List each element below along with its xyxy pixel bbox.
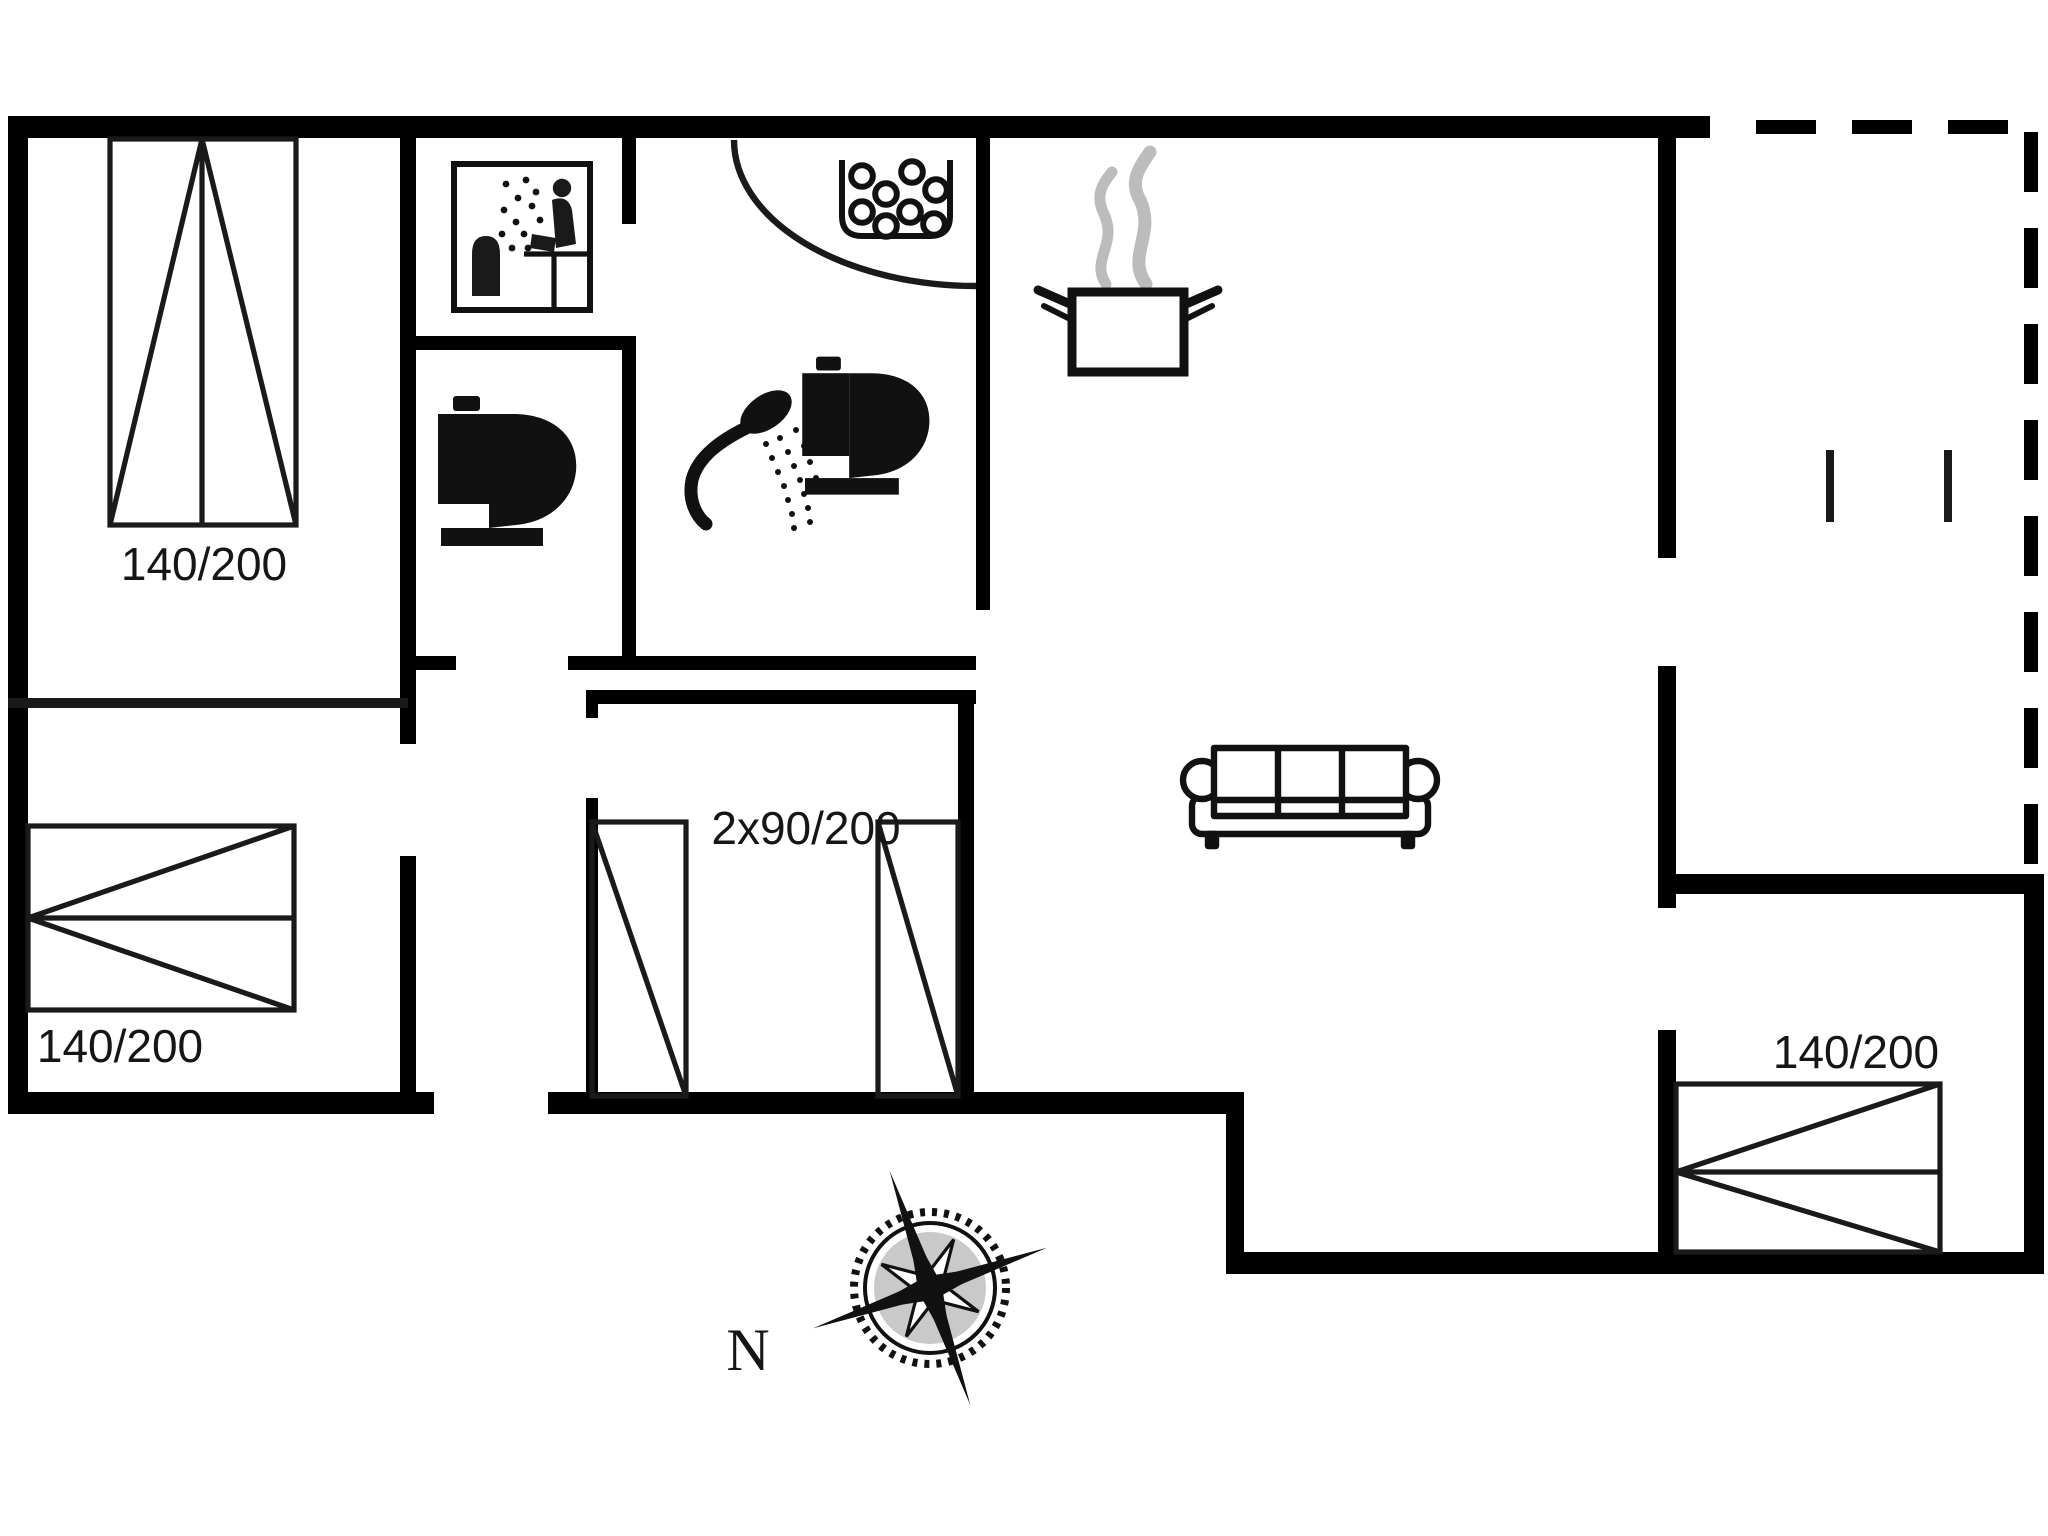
sofa-icon bbox=[1183, 748, 1437, 846]
sauna-icon bbox=[454, 164, 590, 310]
basin-bubbles-icon bbox=[842, 160, 950, 237]
compass-rose-icon: N bbox=[726, 1130, 1087, 1445]
cooking-pot-icon bbox=[1038, 152, 1218, 372]
post-mark bbox=[1826, 450, 1834, 522]
post-mark bbox=[1944, 450, 1952, 522]
bed-size-label: 140/200 bbox=[121, 538, 287, 590]
bed-size-label: 2x90/200 bbox=[711, 802, 900, 854]
steam-wisp bbox=[1135, 152, 1150, 284]
carport-dashed-outline bbox=[1756, 127, 2040, 874]
steam-wisp bbox=[1100, 172, 1112, 284]
bed-size-label: 140/200 bbox=[1773, 1026, 1939, 1078]
north-label: N bbox=[726, 1317, 769, 1383]
floor-plan-canvas: 140/200 140/200 2x90/200 140/200 bbox=[0, 0, 2048, 1536]
shower-icon bbox=[691, 381, 819, 531]
bed-top-left bbox=[110, 139, 296, 525]
bed-size-label: 140/200 bbox=[37, 1020, 203, 1072]
toilet-icon bbox=[802, 357, 929, 495]
beds-middle-pair bbox=[592, 822, 958, 1096]
floor-plan-page: 140/200 140/200 2x90/200 140/200 bbox=[0, 0, 2048, 1536]
toilet-icon bbox=[438, 396, 576, 546]
exterior-walls bbox=[8, 116, 2044, 1274]
bed-mid-left bbox=[28, 826, 294, 1010]
bed-bottom-right bbox=[1676, 1084, 1940, 1252]
